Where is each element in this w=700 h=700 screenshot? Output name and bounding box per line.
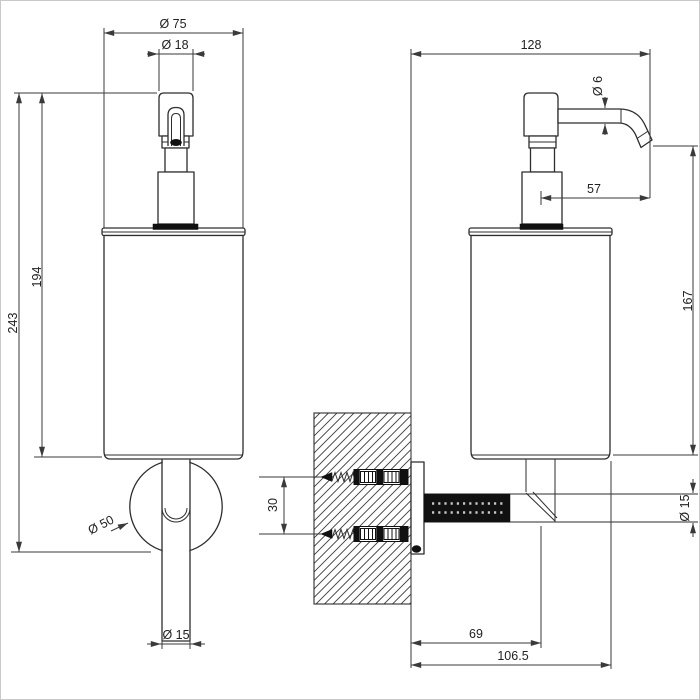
dim-side-wall-to-front: 106.5 — [411, 461, 611, 669]
soap-dispenser-drawing: Ø 75 Ø 18 194 243 Ø 50 Ø 15 — [1, 1, 700, 700]
dim-side-spout-to-base-height: 167 — [613, 146, 698, 455]
side-pump — [520, 93, 652, 230]
dim-label: Ø 18 — [161, 38, 188, 52]
dim-label: 167 — [681, 291, 695, 312]
dim-label: 69 — [469, 627, 483, 641]
dim-label: 30 — [266, 498, 280, 512]
side-view: 128 Ø 6 57 167 30 Ø 15 — [259, 38, 698, 669]
dim-front-rosette-diameter: Ø 50 — [86, 513, 128, 538]
dim-label: 243 — [6, 313, 20, 334]
plate-screw-slot — [412, 546, 421, 553]
dim-front-body-height: 194 — [30, 93, 44, 457]
dim-label: Ø 6 — [591, 76, 605, 96]
wall-section — [314, 413, 411, 604]
front-drop-tube — [162, 460, 190, 642]
front-pump-flange — [153, 224, 198, 230]
dim-front-total-height: 243 — [6, 93, 20, 552]
dim-front-body-diameter: Ø 75 — [104, 17, 243, 33]
dim-side-wall-to-axis: 69 — [411, 526, 541, 648]
dim-label: 57 — [587, 182, 601, 196]
dim-label: Ø 50 — [86, 513, 117, 538]
dim-front-tube-diameter: Ø 15 — [147, 628, 205, 649]
dim-label: 128 — [521, 38, 542, 52]
dim-front-pump-neck-diameter: Ø 18 — [147, 38, 205, 91]
dim-label: Ø 15 — [162, 628, 189, 642]
side-container — [469, 228, 612, 459]
dim-side-arm-diameter: Ø 15 — [678, 479, 693, 537]
dim-label: Ø 75 — [159, 17, 186, 31]
dim-side-spout-diameter: Ø 6 — [591, 76, 605, 135]
technical-drawing-sheet: Ø 75 Ø 18 194 243 Ø 50 Ø 15 — [0, 0, 700, 700]
mounting-arm — [424, 459, 698, 522]
dim-label: 194 — [30, 267, 44, 288]
dim-label: 106.5 — [497, 649, 528, 663]
front-spout-outlet — [170, 139, 181, 145]
front-view: Ø 75 Ø 18 194 243 Ø 50 Ø 15 — [6, 17, 245, 649]
side-pump-flange — [520, 224, 563, 230]
dim-side-screw-spacing: 30 — [259, 477, 321, 534]
mounting-plate — [411, 462, 424, 554]
dim-label: Ø 15 — [678, 494, 692, 521]
front-pump — [153, 93, 198, 230]
front-container — [102, 228, 245, 459]
